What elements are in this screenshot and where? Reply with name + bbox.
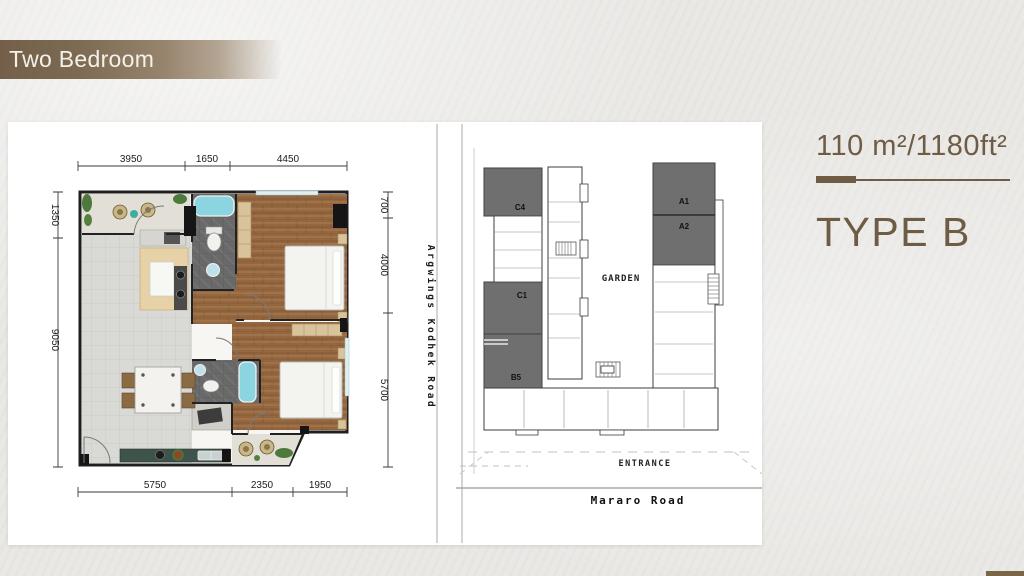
- garden-label: GARDEN: [602, 274, 641, 284]
- dim-right-1: 700: [378, 197, 389, 214]
- site-bottom-bar: [484, 388, 718, 430]
- toilet-1: [207, 233, 221, 251]
- unit-area-text: 110 m²/1180ft²: [816, 130, 1016, 163]
- unit-label-c1: C1: [517, 291, 528, 300]
- dim-right-3: 5700: [378, 379, 389, 402]
- accent-rule-thick: [816, 176, 856, 183]
- kitchen-counter: [120, 449, 230, 462]
- wardrobe-2: [292, 324, 342, 336]
- kitchen-island: [140, 230, 188, 310]
- site-plan: C4 C1 B5 A1 A2 GARDEN ENTRANCE Mararo Ro…: [456, 148, 762, 507]
- basin-1: [207, 264, 220, 277]
- hallway-floor: [192, 290, 236, 324]
- dim-bottom-1: 5750: [144, 480, 167, 491]
- bathtub-1: [194, 196, 234, 216]
- site-unit-c4: [484, 168, 542, 216]
- dim-top-1: 3950: [120, 154, 143, 165]
- accent-rule: [816, 176, 1010, 183]
- dim-top-2: 1650: [196, 154, 219, 165]
- mararo-road-label: Mararo Road: [591, 494, 686, 507]
- stair-core-3: [596, 362, 620, 377]
- accent-rule-thin: [856, 179, 1010, 181]
- fruit-bowl: [173, 450, 183, 460]
- site-unit-c1: [484, 282, 542, 334]
- window-2: [345, 338, 349, 396]
- stair-core-2: [708, 274, 719, 304]
- plan-card: 3950 1650 4450 5750 2350 1950 1350 9050 …: [8, 122, 762, 545]
- unit-floor-plan: [80, 191, 349, 465]
- driveway-markings: [460, 452, 762, 474]
- unit-label-b5: B5: [511, 373, 522, 382]
- entrance-label: ENTRANCE: [619, 459, 672, 469]
- plans-canvas: 3950 1650 4450 5750 2350 1950 1350 9050 …: [8, 122, 762, 545]
- window-1: [256, 191, 318, 195]
- dim-bottom-2: 2350: [251, 480, 274, 491]
- stair-core-1: [556, 242, 576, 255]
- dim-top-3: 4450: [277, 154, 300, 165]
- corner-accent-chip: [986, 571, 1024, 576]
- section-banner: Two Bedroom: [0, 40, 282, 79]
- unit-label-a2: A2: [679, 222, 690, 231]
- unit-type-text: TYPE B: [816, 209, 1016, 256]
- dim-bottom-3: 1950: [309, 480, 332, 491]
- dim-left-1: 1350: [49, 204, 60, 227]
- unit-label-a1: A1: [679, 197, 690, 206]
- banner-title: Two Bedroom: [0, 46, 154, 73]
- unit-label-c4: C4: [515, 203, 526, 212]
- basin-2: [195, 365, 206, 376]
- toilet-2: [203, 380, 219, 392]
- stove-burner: [156, 451, 165, 460]
- argwings-kodhek-road: Argwings Kodhek Road: [425, 124, 462, 543]
- unit-info: 110 m²/1180ft² TYPE B: [816, 130, 1016, 256]
- dim-right-2: 4000: [378, 254, 389, 277]
- dim-left-2: 9050: [49, 329, 60, 352]
- road-label-vertical: Argwings Kodhek Road: [425, 245, 436, 409]
- bathtub-2: [239, 362, 256, 402]
- site-unit-a1: [653, 163, 715, 215]
